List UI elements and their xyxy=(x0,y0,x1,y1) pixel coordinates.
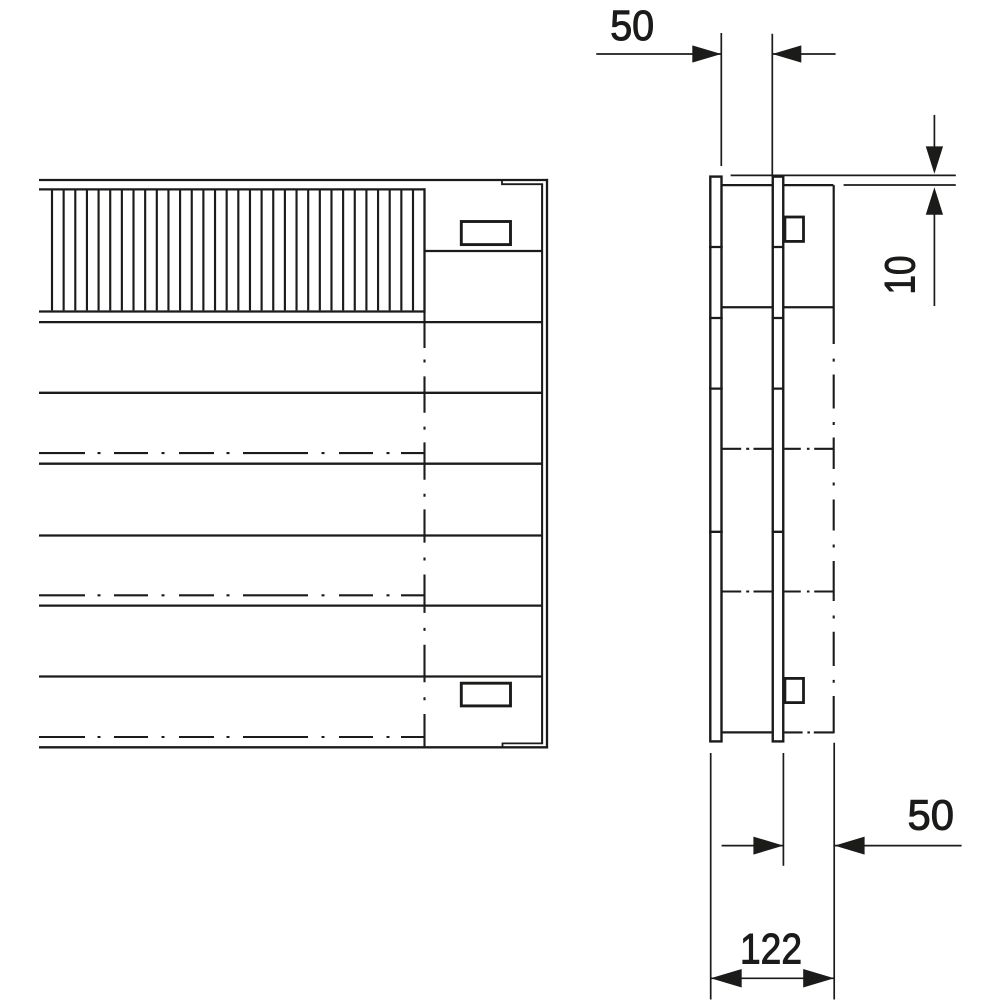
svg-text:10: 10 xyxy=(877,256,925,295)
svg-text:50: 50 xyxy=(610,2,654,50)
svg-text:122: 122 xyxy=(740,925,802,973)
svg-text:50: 50 xyxy=(908,792,955,840)
